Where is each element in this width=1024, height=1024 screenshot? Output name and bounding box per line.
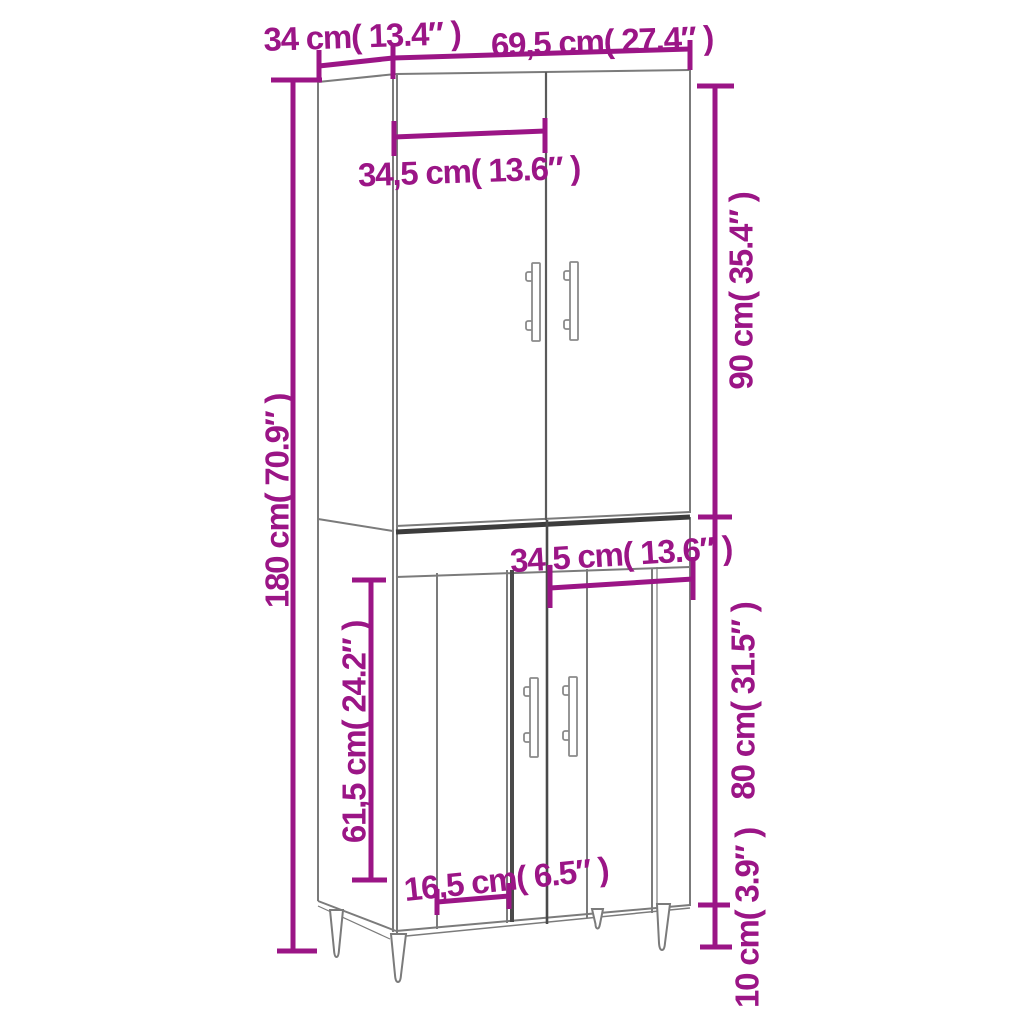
lower-left-door-handle [530, 678, 538, 757]
bottom-front-edge [396, 905, 690, 931]
label-depth: 34 cm( 13.4″ ) [263, 16, 461, 56]
lower-right-door-handle [569, 677, 577, 756]
label-lower-section-height: 80 cm( 31.5″ ) [727, 602, 760, 799]
top-side-edge [318, 74, 396, 82]
top-front-edge [396, 70, 690, 74]
label-upper-door-width: 34,5 cm( 13.6″ ) [357, 151, 580, 192]
door-handles [524, 262, 578, 757]
label-width: 69,5 cm( 27.4″ ) [490, 21, 713, 62]
side-junction-edge [318, 519, 393, 531]
label-total-height: 180 cm( 70.9″ ) [261, 394, 294, 608]
leg-back-left [330, 910, 343, 957]
dimension-diagram: 34 cm( 13.4″ ) 69,5 cm( 27.4″ ) 34,5 cm(… [0, 0, 1024, 1024]
leg-front-right [657, 904, 670, 950]
cabinet-dark-accents [396, 72, 690, 924]
leg-back-right [592, 909, 603, 929]
label-leg-height: 10 cm( 3.9″ ) [731, 828, 764, 1008]
label-upper-section-height: 90 cm( 35.4″ ) [725, 192, 758, 389]
dim-leg-height [700, 905, 732, 947]
bottom-front-lip [396, 908, 690, 937]
upper-right-door-handle [570, 262, 578, 340]
leg-front-left [391, 934, 406, 982]
cabinet-body [318, 70, 690, 939]
bottom-side-lip [318, 906, 390, 939]
upper-left-door-handle [532, 263, 540, 341]
label-lower-inner-height: 61,5 cm( 24.2″ ) [338, 621, 371, 843]
